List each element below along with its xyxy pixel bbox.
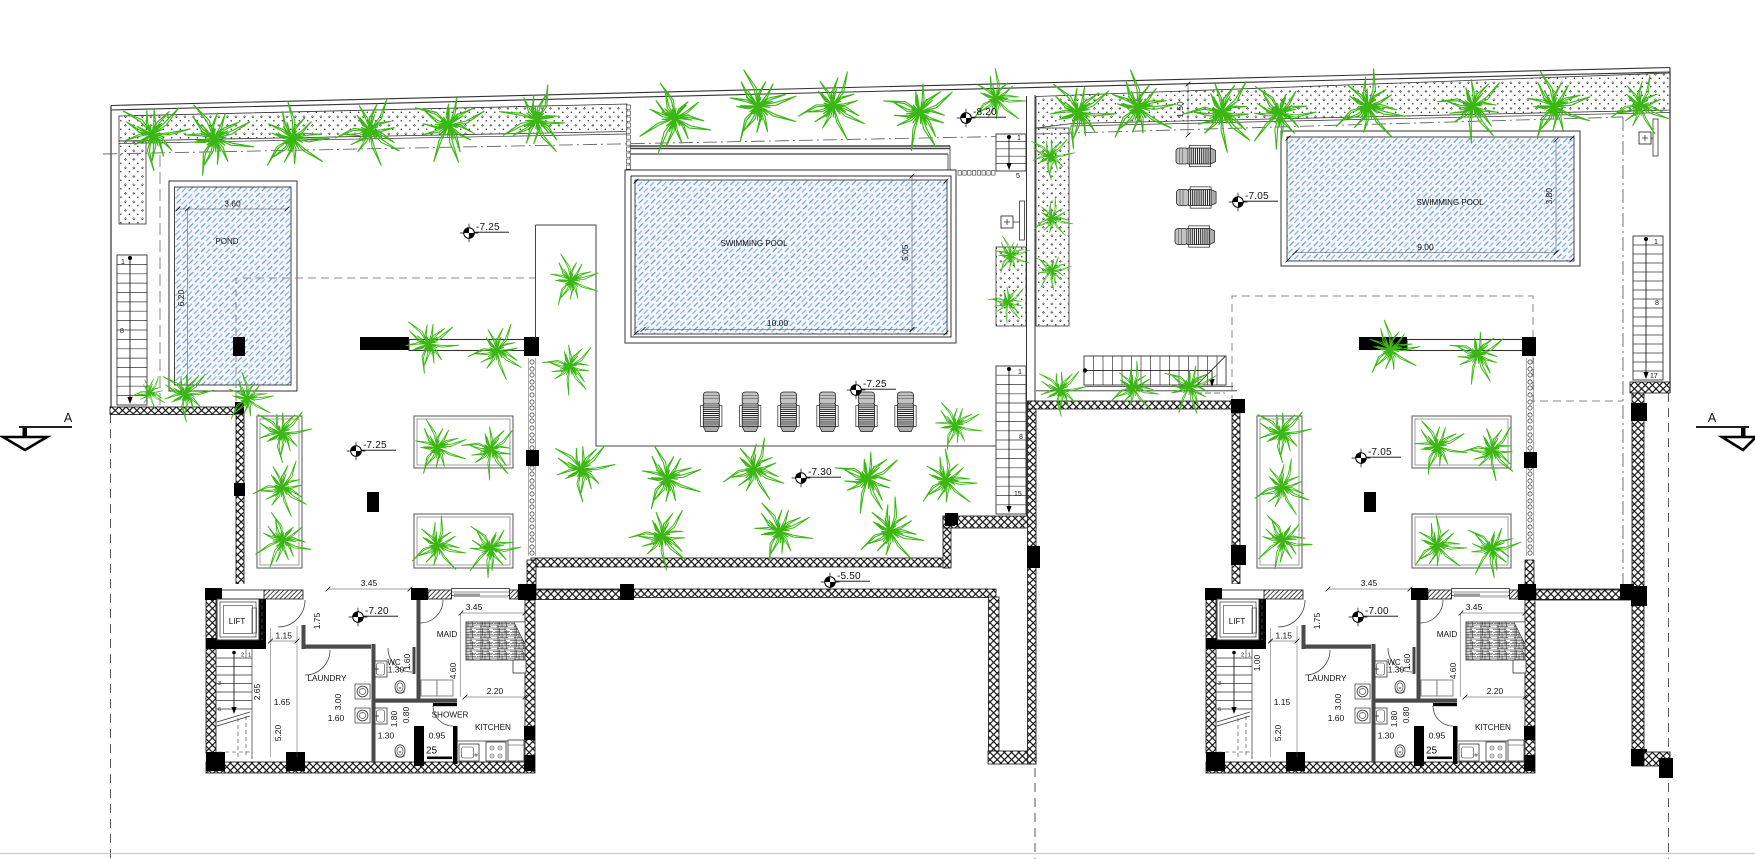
svg-text:SWIMMING POOL: SWIMMING POOL xyxy=(1416,198,1484,207)
svg-text:0.80: 0.80 xyxy=(401,706,411,723)
svg-text:15: 15 xyxy=(1014,491,1022,498)
svg-text:1: 1 xyxy=(248,653,251,659)
svg-text:2.65: 2.65 xyxy=(252,683,262,700)
svg-text:KITCHEN: KITCHEN xyxy=(475,723,511,732)
svg-text:8: 8 xyxy=(1019,434,1023,441)
svg-text:5.20: 5.20 xyxy=(273,724,283,741)
svg-text:9.00: 9.00 xyxy=(1417,242,1434,252)
svg-text:-7.05: -7.05 xyxy=(1368,447,1392,458)
svg-text:-7.30: -7.30 xyxy=(808,467,832,478)
svg-text:5: 5 xyxy=(1016,173,1020,180)
svg-text:3.00: 3.00 xyxy=(333,693,343,710)
svg-text:1: 1 xyxy=(1017,135,1021,142)
svg-text:0.95: 0.95 xyxy=(1429,731,1446,741)
svg-text:4.60: 4.60 xyxy=(1448,662,1458,679)
svg-text:2.20: 2.20 xyxy=(1487,686,1504,696)
svg-text:-7.00: -7.00 xyxy=(1365,606,1389,617)
svg-text:1: 1 xyxy=(1248,653,1251,659)
svg-text:3.45: 3.45 xyxy=(361,578,378,588)
svg-text:3.00: 3.00 xyxy=(1333,693,1343,710)
svg-text:3: 3 xyxy=(218,681,221,687)
svg-text:-7.25: -7.25 xyxy=(476,222,500,233)
svg-text:5.05: 5.05 xyxy=(900,244,910,261)
svg-text:25: 25 xyxy=(1426,746,1438,757)
svg-text:1.50: 1.50 xyxy=(1175,101,1185,118)
svg-text:6: 6 xyxy=(218,707,221,713)
svg-text:LAUNDRY: LAUNDRY xyxy=(308,674,348,683)
svg-text:-7.25: -7.25 xyxy=(863,379,887,390)
svg-text:MAID: MAID xyxy=(437,630,458,639)
svg-text:17: 17 xyxy=(1650,373,1658,380)
svg-text:1: 1 xyxy=(1018,369,1022,376)
svg-text:10.00: 10.00 xyxy=(767,318,789,328)
svg-text:1.60: 1.60 xyxy=(402,653,412,670)
svg-text:LIFT: LIFT xyxy=(229,617,246,626)
svg-text:3.60: 3.60 xyxy=(224,199,241,209)
svg-text:3.80: 3.80 xyxy=(1544,188,1554,205)
svg-text:-7.05: -7.05 xyxy=(1245,191,1269,202)
svg-text:3.45: 3.45 xyxy=(466,602,483,612)
svg-text:6.20: 6.20 xyxy=(176,289,186,306)
svg-text:1.80: 1.80 xyxy=(1389,710,1399,727)
svg-text:0.95: 0.95 xyxy=(429,731,446,741)
svg-text:1.15: 1.15 xyxy=(275,631,292,641)
svg-text:MAID: MAID xyxy=(1437,630,1458,639)
svg-text:KITCHEN: KITCHEN xyxy=(1475,723,1511,732)
svg-text:1.80: 1.80 xyxy=(389,710,399,727)
svg-text:1.60: 1.60 xyxy=(328,713,345,723)
svg-text:2: 2 xyxy=(241,653,244,659)
svg-text:1.30: 1.30 xyxy=(1378,731,1395,741)
svg-text:1.30: 1.30 xyxy=(378,731,395,741)
svg-text:1.60: 1.60 xyxy=(1402,653,1412,670)
svg-text:1.60: 1.60 xyxy=(1328,713,1345,723)
svg-text:2: 2 xyxy=(1241,653,1244,659)
svg-text:-8.20: -8.20 xyxy=(973,107,997,118)
svg-text:1.65: 1.65 xyxy=(274,697,291,707)
svg-text:1: 1 xyxy=(121,259,125,266)
svg-text:6: 6 xyxy=(1218,707,1221,713)
svg-text:1.75: 1.75 xyxy=(312,612,322,629)
svg-text:1: 1 xyxy=(1654,239,1658,246)
svg-text:3: 3 xyxy=(1218,681,1221,687)
svg-text:1.75: 1.75 xyxy=(1312,612,1322,629)
svg-text:4.60: 4.60 xyxy=(448,662,458,679)
svg-text:8: 8 xyxy=(120,328,124,335)
svg-text:-7.20: -7.20 xyxy=(365,606,389,617)
svg-text:SHOWER: SHOWER xyxy=(432,711,469,720)
svg-text:1.15: 1.15 xyxy=(1275,631,1292,641)
svg-text:LAUNDRY: LAUNDRY xyxy=(1308,674,1348,683)
svg-text:-5.50: -5.50 xyxy=(837,571,861,582)
svg-text:LIFT: LIFT xyxy=(1229,617,1246,626)
svg-text:25: 25 xyxy=(426,746,438,757)
svg-text:3.45: 3.45 xyxy=(1361,578,1378,588)
svg-text:A: A xyxy=(64,411,73,425)
svg-text:3.45: 3.45 xyxy=(1466,602,1483,612)
svg-text:-7.25: -7.25 xyxy=(363,440,387,451)
svg-text:POND: POND xyxy=(215,237,238,246)
svg-text:A: A xyxy=(1708,411,1717,425)
svg-text:SWIMMING POOL: SWIMMING POOL xyxy=(720,239,788,248)
svg-text:1.15: 1.15 xyxy=(1274,697,1291,707)
svg-text:5.20: 5.20 xyxy=(1273,724,1283,741)
svg-text:1.00: 1.00 xyxy=(1252,654,1262,671)
svg-text:0.80: 0.80 xyxy=(1401,706,1411,723)
svg-text:8: 8 xyxy=(1655,300,1659,307)
svg-text:2.20: 2.20 xyxy=(487,686,504,696)
